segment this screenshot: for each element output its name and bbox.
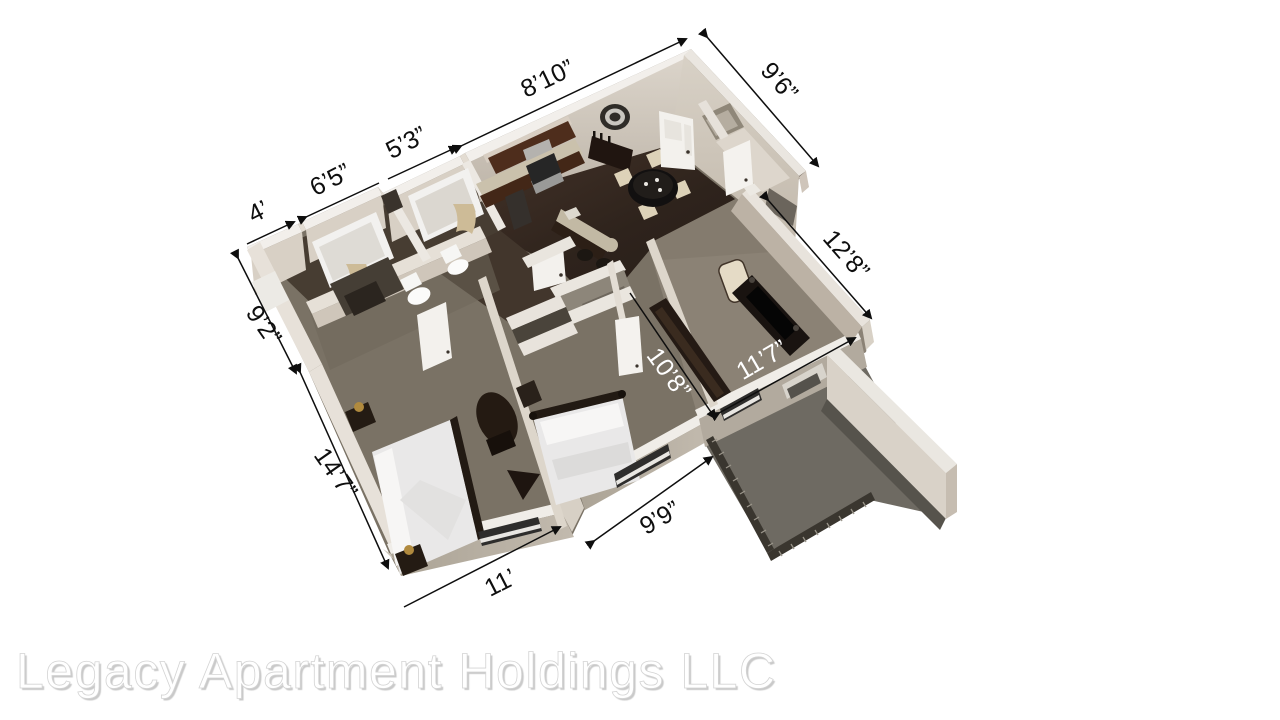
svg-text:5’3”: 5’3”	[381, 121, 431, 165]
svg-text:9’9”: 9’9”	[635, 496, 685, 541]
svg-text:9’6”: 9’6”	[755, 57, 803, 107]
svg-text:6’5”: 6’5”	[305, 158, 355, 202]
svg-text:8’10”: 8’10”	[516, 54, 578, 104]
svg-text:11’: 11’	[480, 563, 521, 602]
svg-text:4’: 4’	[243, 195, 273, 229]
